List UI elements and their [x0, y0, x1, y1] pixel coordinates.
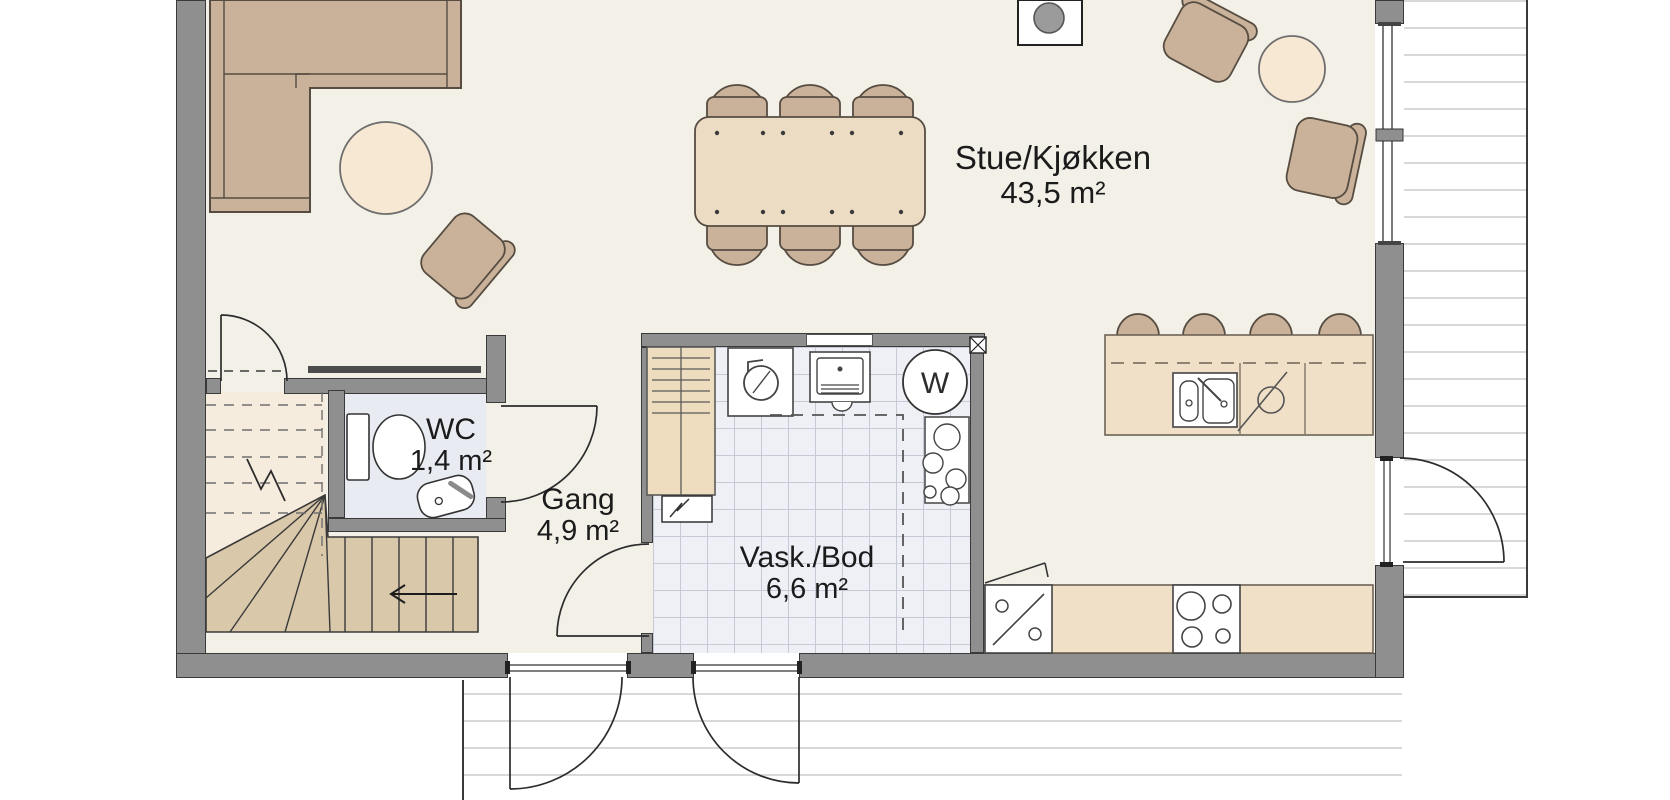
dining-table — [695, 117, 925, 226]
coffee-table — [340, 122, 432, 214]
wc-sink — [414, 472, 477, 520]
stair-break-zigzag — [247, 459, 285, 501]
room-area: 4,9 m² — [537, 516, 619, 547]
laundry-sink — [810, 352, 870, 411]
room-name: Stue/Kjøkken — [955, 140, 1151, 176]
armchair-2 — [1155, 0, 1260, 89]
room-label-vask-bod: Vask./Bod 6,6 m² — [740, 542, 875, 606]
kitchen-island — [1105, 314, 1373, 435]
bar-stool — [1183, 314, 1225, 336]
window — [1376, 22, 1403, 245]
room-name: Vask./Bod — [740, 542, 875, 574]
room-label-wc: WC 1,4 m² — [410, 414, 492, 478]
bar-stool — [1117, 314, 1159, 336]
room-name: WC — [410, 414, 492, 446]
bar-stool — [1319, 314, 1361, 336]
entry-door-right — [693, 677, 799, 783]
washer-letter: W — [921, 367, 950, 400]
washing-machine: W — [903, 350, 967, 414]
side-table — [1259, 36, 1325, 102]
room-area: 1,4 m² — [410, 446, 492, 477]
water-heater — [728, 348, 793, 416]
vent-box-icon — [970, 337, 986, 353]
armchair-3 — [1283, 111, 1368, 206]
pipe-manifold — [923, 417, 969, 505]
kitchen-counter — [985, 563, 1373, 653]
wardrobe — [647, 347, 715, 495]
dining-chairs-bottom — [707, 221, 913, 265]
kitchen-sink — [1173, 373, 1237, 427]
dishwasher — [985, 585, 1052, 653]
counter-flap — [985, 563, 1048, 583]
room-area: 6,6 m² — [740, 574, 875, 605]
dining-set — [695, 85, 925, 265]
floor-plan: W — [0, 0, 1670, 800]
armchair-1 — [413, 205, 519, 312]
bar-stool — [1250, 314, 1292, 336]
electrical-panel — [662, 496, 712, 522]
laundry-door — [557, 544, 649, 636]
fireplace-stove — [1018, 0, 1082, 45]
entry-door-left — [510, 677, 622, 789]
room-label-stue-kjokken: Stue/Kjøkken 43,5 m² — [955, 140, 1151, 209]
room-name: Gang — [537, 484, 619, 516]
room-label-gang: Gang 4,9 m² — [537, 484, 619, 548]
plan-linework: W — [0, 0, 1670, 800]
terrace-door — [1400, 458, 1504, 562]
room-area: 43,5 m² — [955, 176, 1151, 209]
cooktop — [1173, 585, 1240, 653]
